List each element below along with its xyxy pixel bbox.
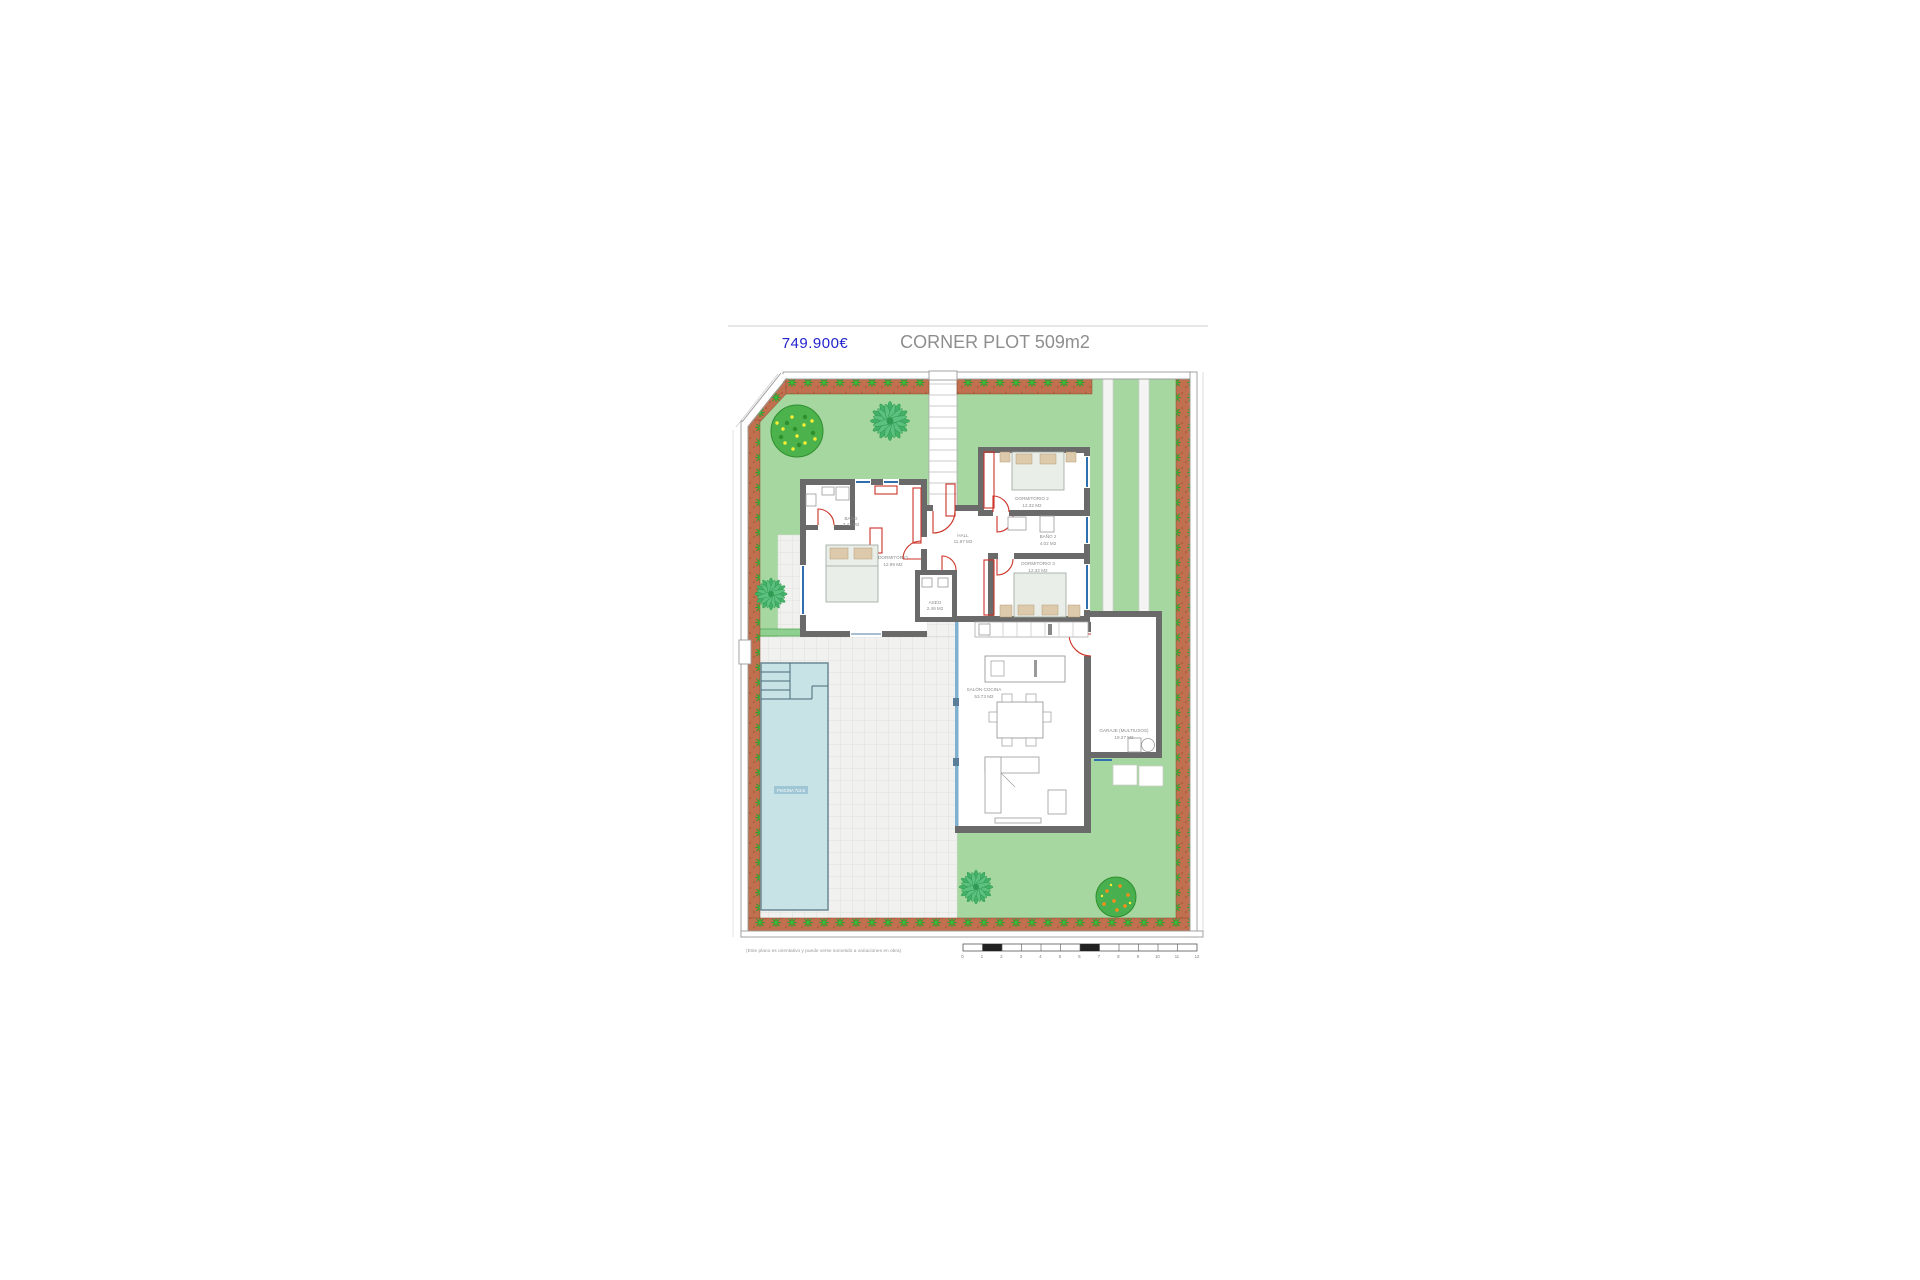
site-plan-drawing: PISCINA 7x3.5 xyxy=(0,0,1920,1280)
scale-numbers: 0 1 2 3 4 5 6 7 8 9 10 11 12 xyxy=(961,954,1200,959)
entrance-walkway xyxy=(929,372,957,509)
price-label: 749.900€ xyxy=(760,335,870,352)
orange-bush xyxy=(1096,877,1136,917)
pool-label: PISCINA 7x3.5 xyxy=(777,788,806,793)
footer: (Este plano es orientativo y puede verse… xyxy=(746,944,1200,959)
lemon-tree xyxy=(771,405,823,457)
floor-plan-sheet: 749.900€ CORNER PLOT 509m2 xyxy=(0,0,1920,1280)
disclaimer-text: (Este plano es orientativo y puede verse… xyxy=(746,948,902,954)
swimming-pool: PISCINA 7x3.5 xyxy=(761,663,828,910)
glass-wall xyxy=(955,622,959,826)
room-label-aseo: ASEO2.49 M2 xyxy=(927,600,944,611)
scale-bar: 0 1 2 3 4 5 6 7 8 9 10 11 12 xyxy=(961,944,1200,959)
plot-title: CORNER PLOT 509m2 xyxy=(880,332,1110,353)
